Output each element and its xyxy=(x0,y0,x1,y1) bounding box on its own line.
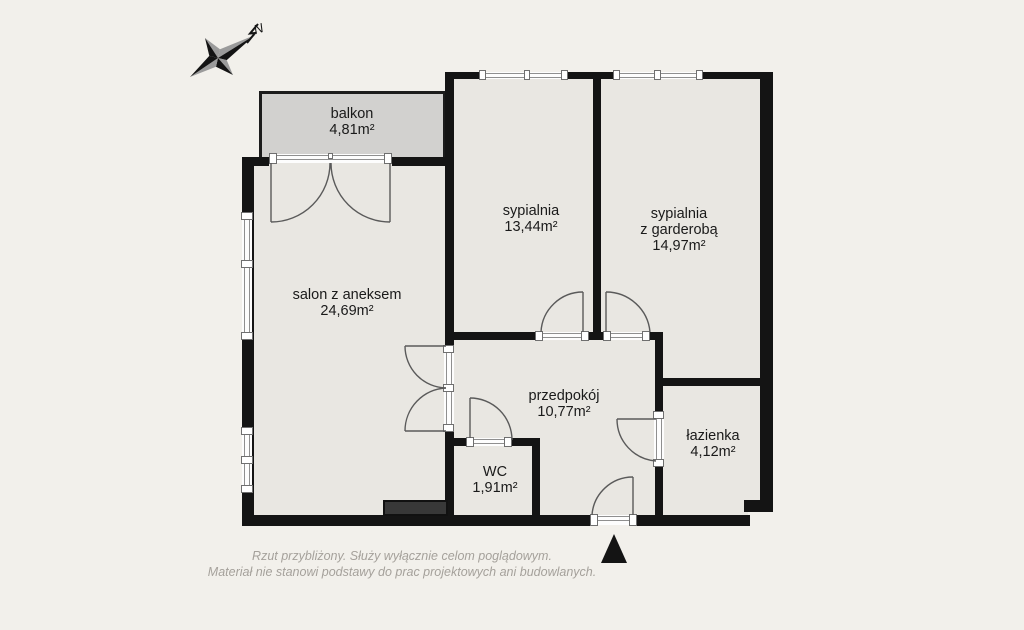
room-area: 10,77m² xyxy=(529,404,600,420)
room-area: 1,91m² xyxy=(472,480,517,496)
room-label-wc: WC 1,91m² xyxy=(472,464,517,496)
room-name: salon z aneksem xyxy=(293,287,402,303)
room-area: 14,97m² xyxy=(640,238,717,254)
disclaimer: Rzut przybliżony. Służy wyłącznie celom … xyxy=(208,549,596,580)
room-name: sypialnia xyxy=(503,203,559,219)
balcony-door-swing xyxy=(271,163,390,222)
room-name: sypialnia xyxy=(640,206,717,222)
room-name: balkon xyxy=(329,106,374,122)
room-label-sypialnia-z-garderoba: sypialnia z garderobą 14,97m² xyxy=(640,206,717,254)
room-label-balkon: balkon 4,81m² xyxy=(329,106,374,138)
bedroom-door-swing xyxy=(541,292,583,332)
room-label-lazienka: łazienka 4,12m² xyxy=(686,428,739,460)
room-name: WC xyxy=(472,464,517,480)
room-area: 24,69m² xyxy=(293,303,402,319)
entrance-arrow-icon xyxy=(601,534,627,563)
compass-icon: N xyxy=(190,20,266,77)
disclaimer-line1: Rzut przybliżony. Służy wyłącznie celom … xyxy=(208,549,596,565)
salon-door-swing xyxy=(405,346,446,431)
room-name-line2: z garderobą xyxy=(640,222,717,238)
room-area: 4,81m² xyxy=(329,122,374,138)
room-label-salon: salon z aneksem 24,69m² xyxy=(293,287,402,319)
room-area: 4,12m² xyxy=(686,444,739,460)
room-label-sypialnia: sypialnia 13,44m² xyxy=(503,203,559,235)
entrance-door-swing xyxy=(592,477,633,515)
bedroom2-door-swing xyxy=(606,292,650,332)
disclaimer-line2: Materiał nie stanowi podstawy do prac pr… xyxy=(208,565,596,581)
room-name: łazienka xyxy=(686,428,739,444)
plan-overlay: N xyxy=(0,0,1024,630)
floorplan-page: { "meta": { "background": "#f2f0eb", "ro… xyxy=(0,0,1024,630)
room-name: przedpokój xyxy=(529,388,600,404)
wc-door-swing xyxy=(470,398,512,440)
bathroom-door-swing xyxy=(617,419,656,461)
room-area: 13,44m² xyxy=(503,219,559,235)
room-label-przedpokoj: przedpokój 10,77m² xyxy=(529,388,600,420)
